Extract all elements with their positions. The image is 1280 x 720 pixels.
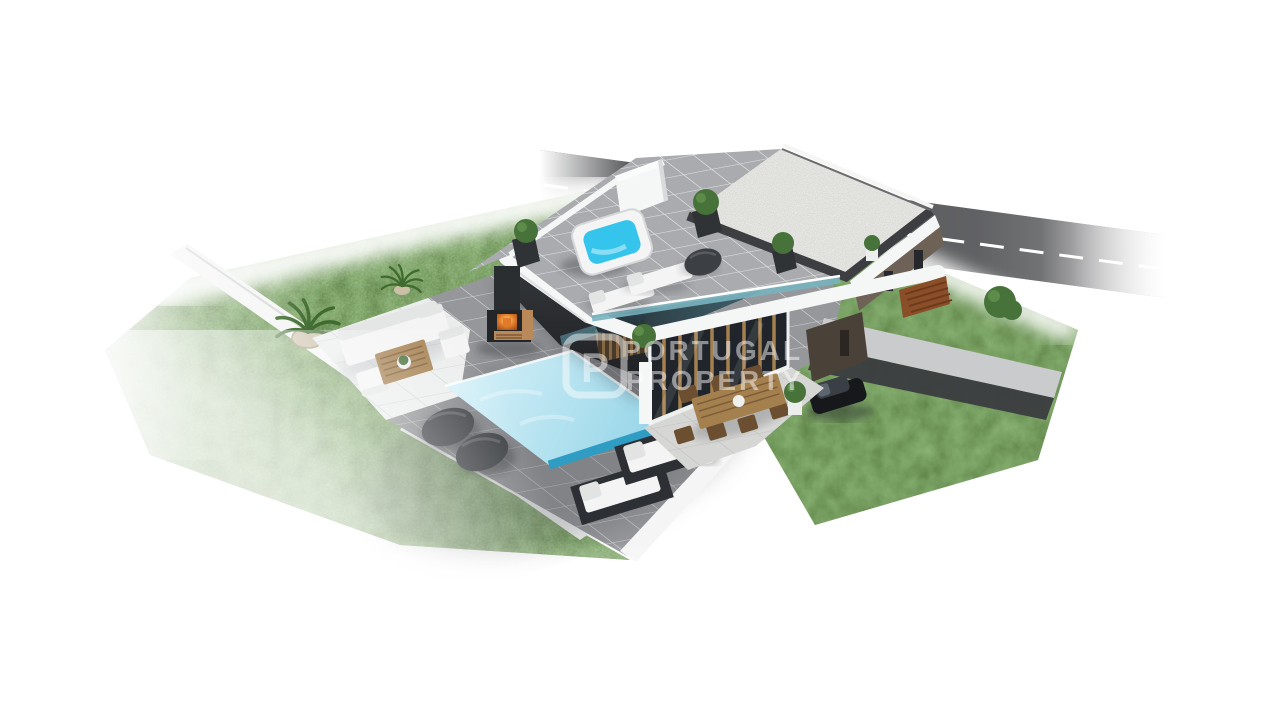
garage-window — [840, 330, 849, 356]
fireplace-chimney — [494, 266, 520, 314]
bush-highlight — [696, 193, 706, 203]
upper-window — [914, 250, 923, 270]
watermark-logo-letter: P — [581, 344, 612, 391]
villa-aerial-scene: P PORTUGAL PROPERTY — [0, 0, 1280, 720]
watermark-line2: PROPERTY — [626, 365, 804, 396]
watermark: P PORTUGAL PROPERTY — [566, 335, 804, 396]
architectural-render: P PORTUGAL PROPERTY — [0, 0, 1280, 720]
planter-bush — [693, 189, 719, 215]
fade-corner-tl — [0, 120, 380, 460]
pot-bush — [864, 235, 880, 251]
planter-bush — [514, 219, 538, 243]
round-bush-small — [1002, 300, 1022, 320]
bush-highlight — [988, 290, 1000, 302]
fire-core — [503, 318, 511, 326]
watermark-line1: PORTUGAL — [622, 335, 803, 366]
bush-highlight — [517, 222, 527, 232]
planter-bush — [772, 232, 794, 254]
